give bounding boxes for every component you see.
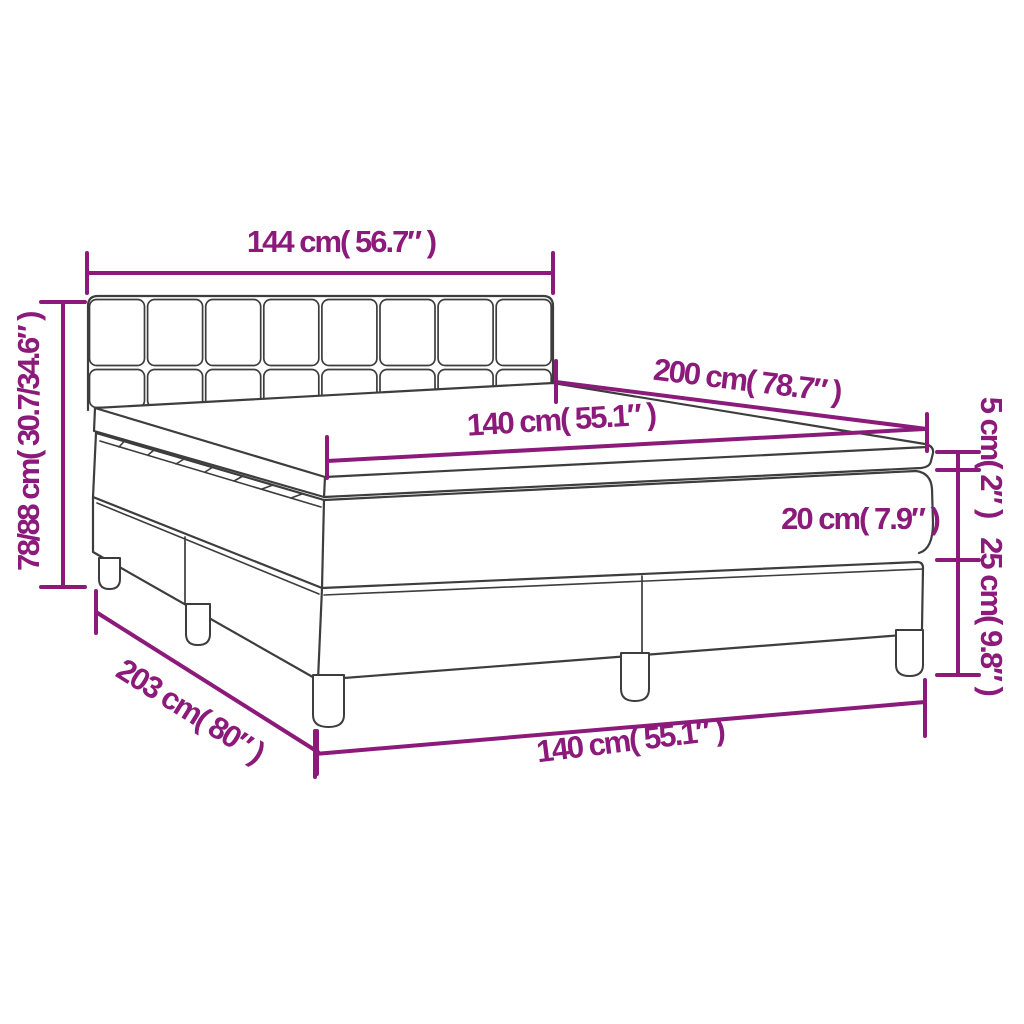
dimension-diagram: 144 cm( 56.7″ ) 78/88 cm( 30.7/34.6″ ) 2… (0, 0, 1024, 1024)
topper-thickness-label: 5 cm( 2″ ) (973, 397, 1009, 518)
leg-mid-left (186, 604, 210, 645)
leg-foot-left (313, 675, 344, 727)
total-height-label: 78/88 cm( 30.7/34.6″ ) (11, 313, 47, 571)
leg-head-left (99, 558, 120, 589)
base-height-label: 25 cm( 9.8″ ) (973, 537, 1009, 695)
leg-foot-middle (621, 653, 649, 701)
mattress-thickness-label: 20 cm( 7.9″ ) (781, 501, 939, 537)
leg-foot-right (896, 630, 923, 676)
headboard-width-label: 144 cm( 56.7″ ) (247, 224, 435, 260)
dim-line-total-height (41, 302, 85, 587)
